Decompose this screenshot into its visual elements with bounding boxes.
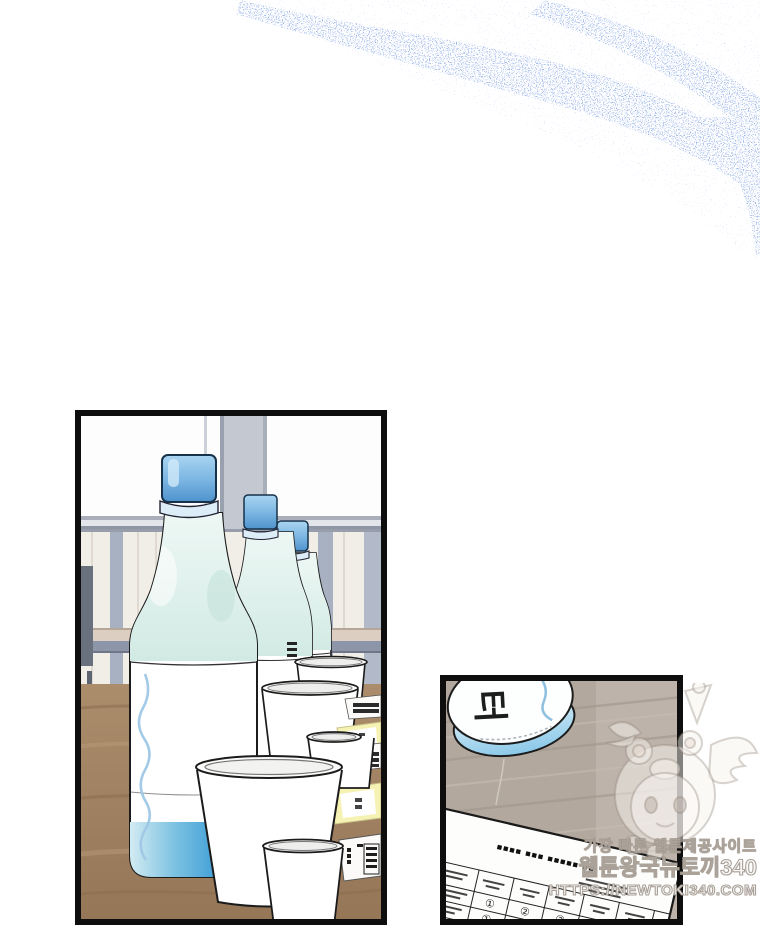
svg-text:④: ④ [589, 922, 601, 925]
survey-scene: 터 ■■■■ ■■■ ■■■■■ ■■ [446, 681, 677, 925]
grid-paper-3 [339, 834, 381, 881]
svg-text:②: ② [515, 921, 527, 925]
panel-survey: 터 ■■■■ ■■■ ■■■■■ ■■ [440, 675, 683, 925]
paper-cup-front [263, 840, 343, 920]
svg-text:①: ① [480, 913, 492, 925]
bottles-scene [81, 416, 381, 919]
svg-text:③: ③ [554, 914, 566, 925]
spray-decoration-icon [0, 0, 760, 275]
webtoon-page: 터 ■■■■ ■■■ ■■■■■ ■■ [0, 0, 760, 920]
grid-paper-1 [345, 695, 381, 719]
panel-bottles [75, 410, 387, 925]
cap-label-text: 터 [469, 689, 512, 724]
